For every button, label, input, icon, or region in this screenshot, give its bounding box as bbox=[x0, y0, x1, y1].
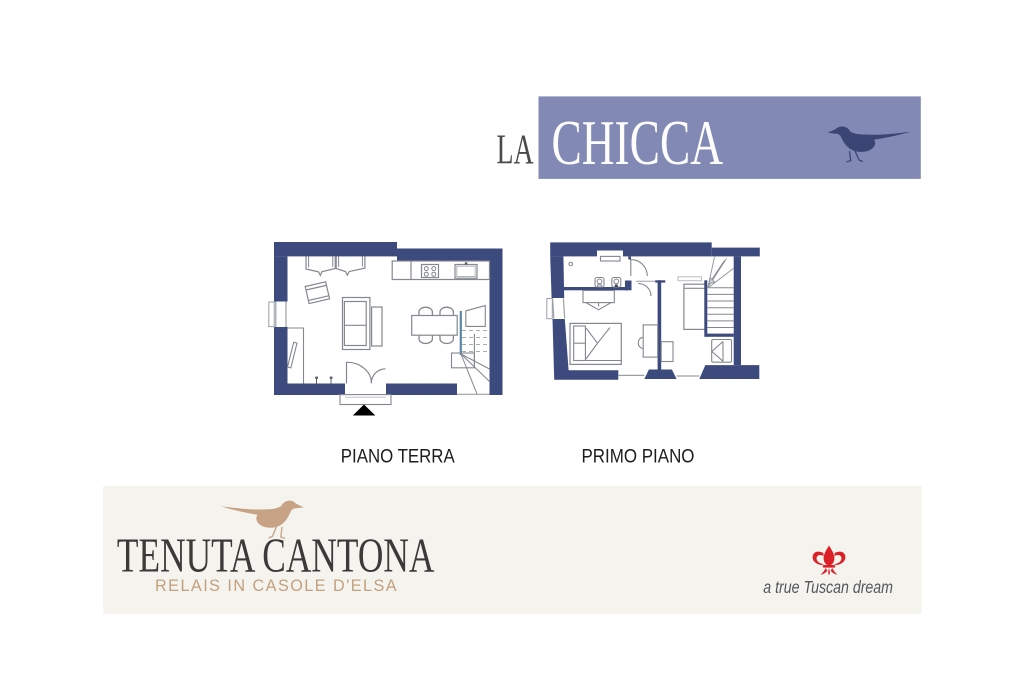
svg-text:PIANO TERRA: PIANO TERRA bbox=[341, 446, 455, 468]
svg-text:RELAIS IN CASOLE D'ELSA: RELAIS IN CASOLE D'ELSA bbox=[155, 577, 397, 595]
svg-text:a true Tuscan dream: a true Tuscan dream bbox=[763, 577, 893, 597]
svg-text:PRIMO PIANO: PRIMO PIANO bbox=[582, 446, 695, 468]
svg-text:LA: LA bbox=[497, 127, 534, 174]
svg-text:TENUTA CANTONA: TENUTA CANTONA bbox=[117, 528, 435, 583]
svg-text:CHICCA: CHICCA bbox=[552, 107, 724, 178]
